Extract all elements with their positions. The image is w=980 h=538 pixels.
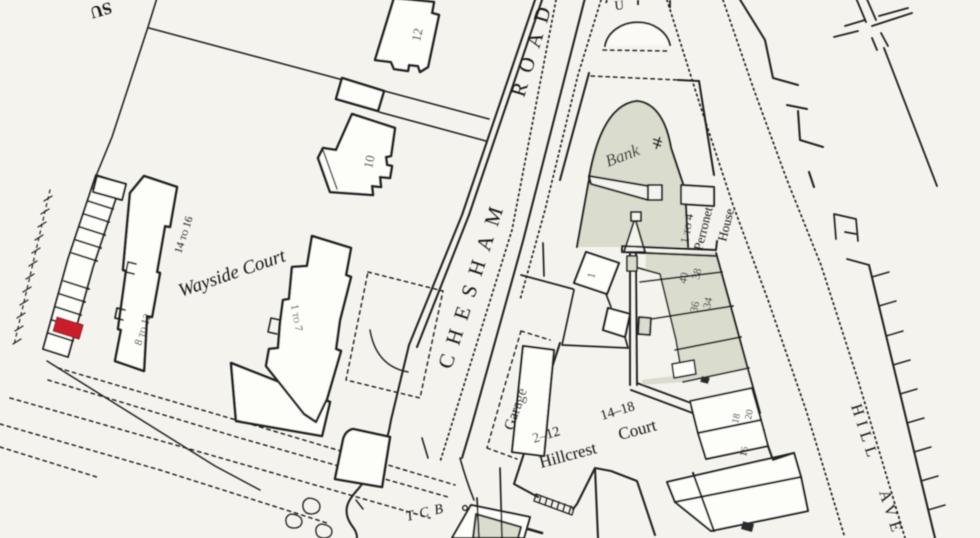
- svg-text:U: U: [614, 0, 626, 13]
